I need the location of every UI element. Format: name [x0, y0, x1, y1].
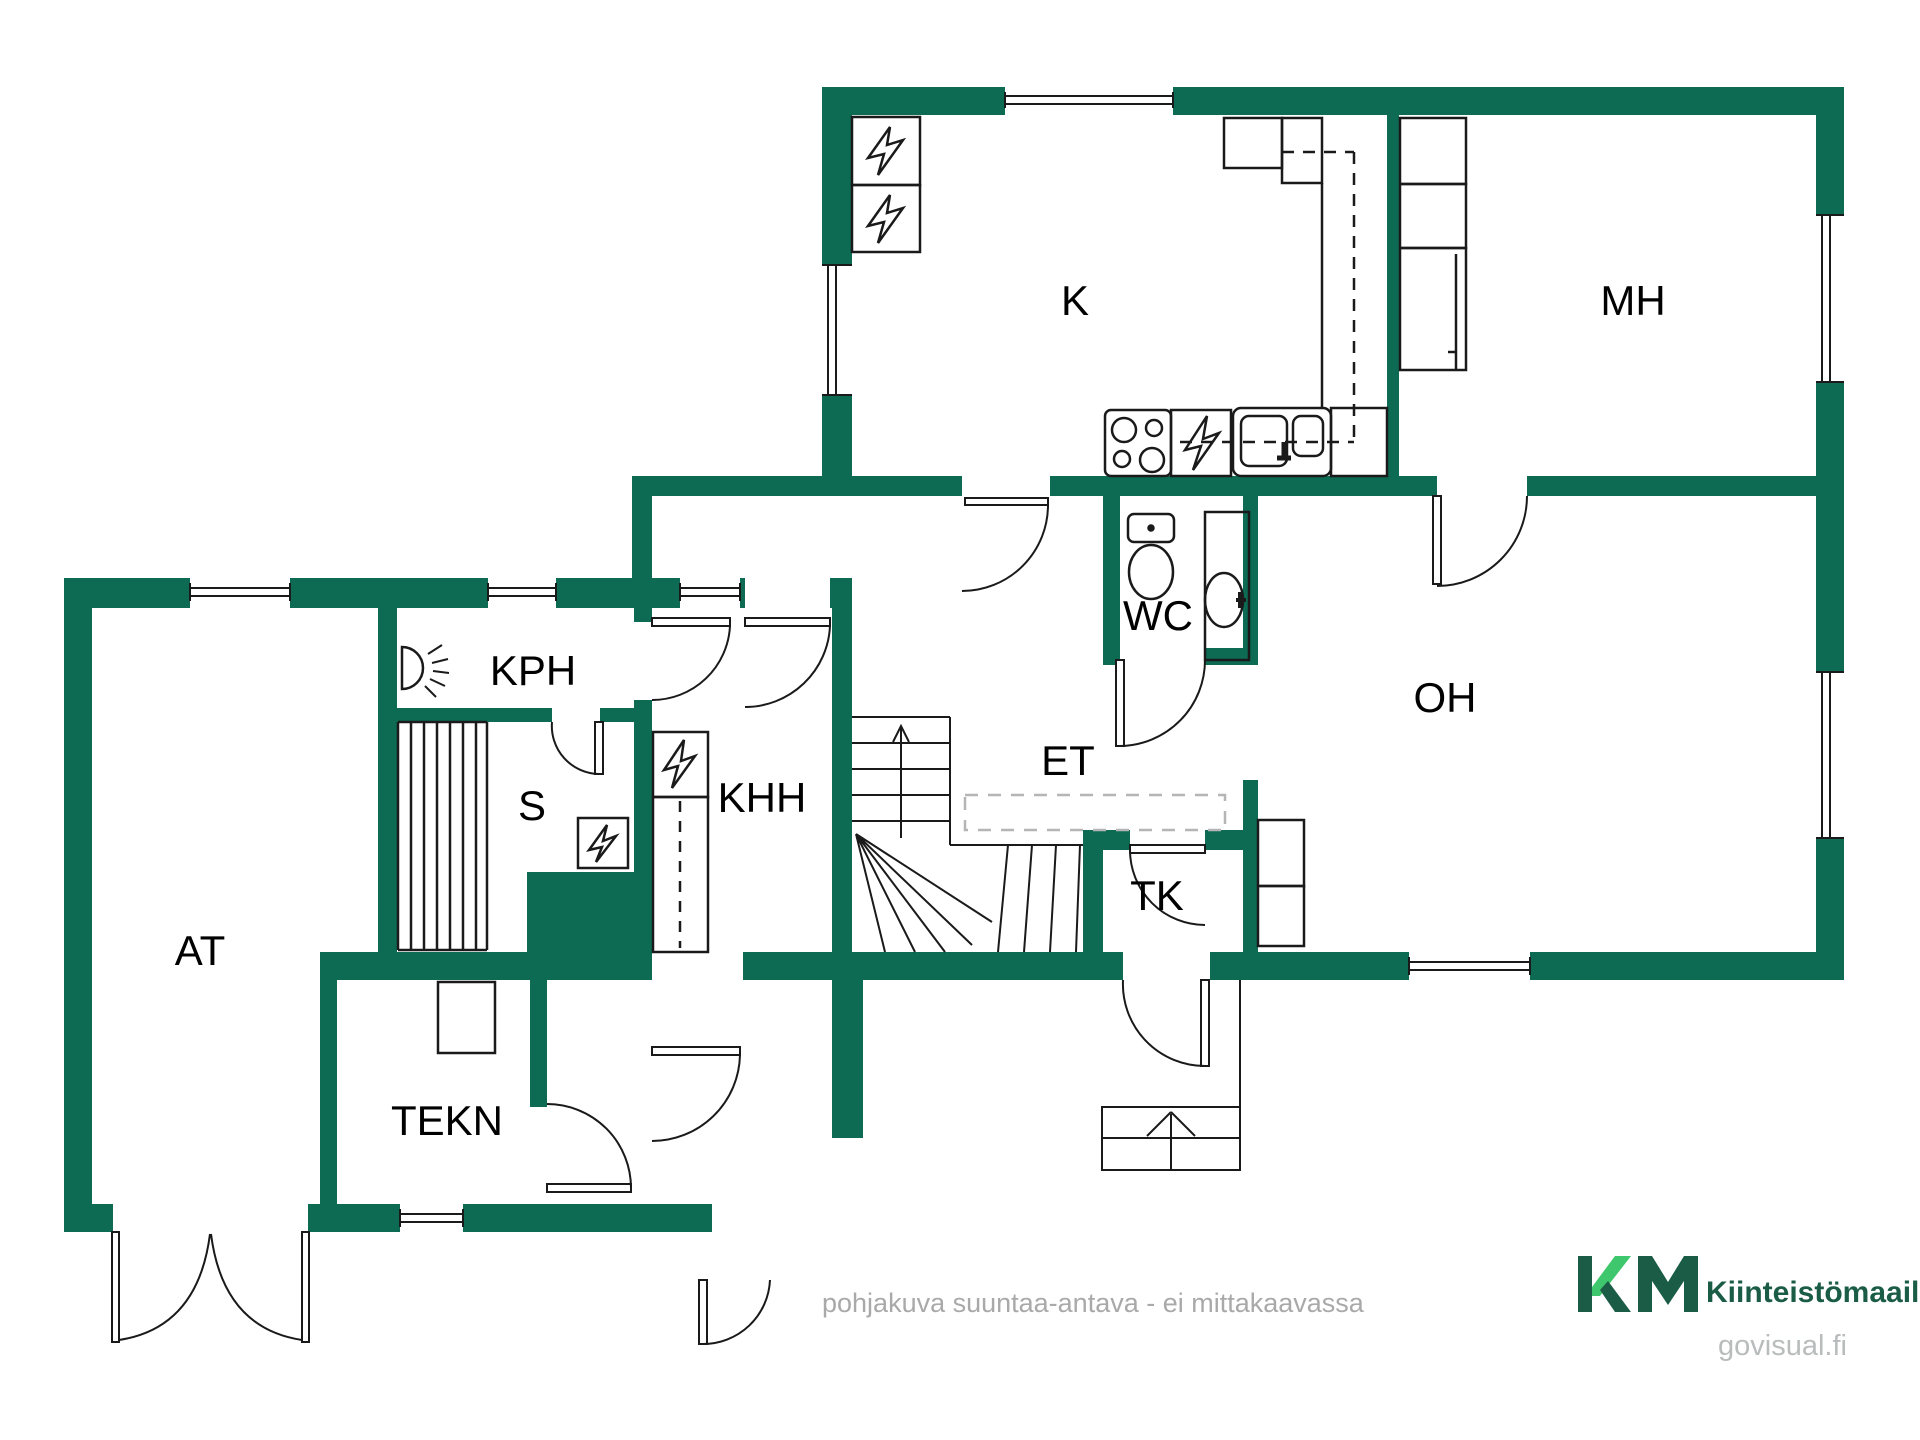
toilet-icon [1128, 514, 1174, 599]
sauna-heater-icon [578, 818, 628, 868]
wall-openings [113, 87, 1844, 1232]
room-label-oh: OH [1414, 674, 1477, 721]
floor-plan-canvas: K MH OH WC ET TK KPH S KHH AT TEKN pohja… [0, 0, 1920, 1440]
sauna-bench [398, 722, 487, 950]
et-wardrobe-dashed [965, 795, 1225, 830]
room-label-at: AT [175, 927, 226, 974]
tekn-boiler [438, 982, 495, 1053]
room-label-khh: KHH [718, 774, 807, 821]
room-label-k: K [1061, 277, 1089, 324]
entry-steps [1102, 980, 1240, 1170]
room-label-mh: MH [1600, 277, 1665, 324]
kitchen-fixtures [852, 117, 1387, 476]
floor-plan-page: K MH OH WC ET TK KPH S KHH AT TEKN pohja… [0, 0, 1920, 1440]
km-wordmark: Kiinteistömaailma [1706, 1276, 1920, 1309]
garage-double-door [112, 1232, 309, 1342]
mh-wardrobes [1400, 118, 1466, 370]
fireplace [1258, 820, 1304, 946]
km-logo: Kiinteistömaailma [1578, 1256, 1920, 1312]
room-label-tk: TK [1130, 872, 1184, 919]
laundry-appliance-icon [653, 732, 708, 797]
stove-icon [1105, 410, 1171, 476]
appliance-bolt-icon [852, 117, 920, 252]
room-label-et: ET [1041, 737, 1095, 784]
room-label-tekn: TEKN [391, 1097, 503, 1144]
walls [64, 87, 1844, 1232]
wash-basin-icon [1205, 512, 1249, 660]
room-label-s: S [518, 782, 546, 829]
shower-icon [402, 645, 449, 697]
govisual-text: govisual.fi [1718, 1330, 1847, 1362]
window-icons [190, 92, 1844, 1227]
room-label-wc: WC [1123, 592, 1193, 639]
watermark-text: pohjakuva suuntaa-antava - ei mittakaava… [822, 1288, 1365, 1318]
room-label-kph: KPH [490, 647, 576, 694]
tall-cabinet [653, 797, 708, 952]
